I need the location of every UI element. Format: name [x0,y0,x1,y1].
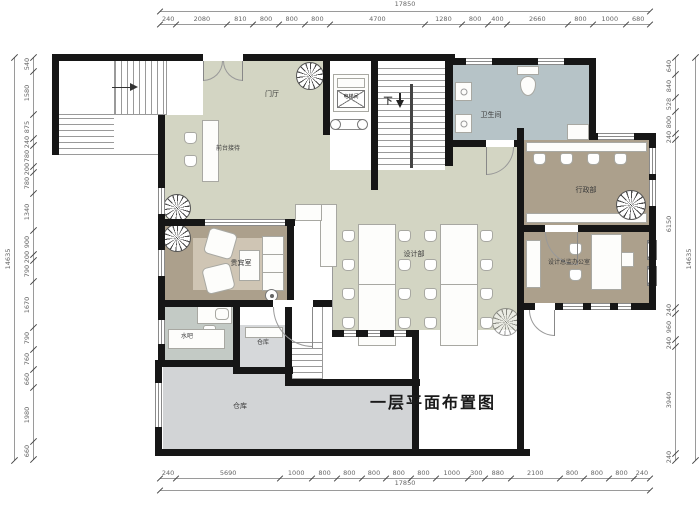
room-label-admin: 行政部 [560,187,612,194]
chair [480,230,493,242]
window [466,58,492,65]
dim-segment: 800 [312,467,337,478]
dim-total-label: 14635 [686,248,693,269]
room-label-director: 设计总监办公室 [523,260,615,266]
dim-segment: 1340 [22,194,33,231]
dim-segment: 240 [160,467,176,478]
door-leaf [312,307,313,348]
chair [480,317,493,329]
dim-segment: 780 [22,172,33,193]
dim-segment: 5690 [176,467,280,478]
dim-segment: 1280 [425,13,463,24]
chair [533,153,546,165]
entry-direction-arrow-icon [130,83,138,91]
entry-stair-treads-lower [59,118,114,153]
entry-door-opening [203,54,243,61]
chair [424,259,437,271]
dim-segment: 790 [22,327,33,349]
chair [424,288,437,300]
dim-segment: 3940 [664,346,675,453]
dim-segment: 300 [468,467,485,478]
down-arrow-icon [396,100,404,108]
window [158,320,165,344]
machine-wheel-icon [330,119,341,130]
wall [285,379,420,386]
room-label-vip: 贵宾室 [225,260,257,267]
door-arc [529,310,555,336]
room-label-entrance-hall: 门厅 [258,91,286,98]
dim-segment: 660 [22,370,33,388]
dim-segment: 800 [337,467,362,478]
wall [233,367,293,374]
dim-segment: 1000 [593,13,626,24]
chair [342,288,355,300]
dim-segment: 6150 [664,140,675,307]
corridor-cabinet [320,204,337,267]
dim-segment: 800 [253,13,279,24]
dim-segment: 800 [362,467,387,478]
dim-segment: 680 [626,13,650,24]
dim-total-label: 17850 [395,1,416,10]
work-table [358,224,396,346]
chair [560,153,573,165]
storage-shelf [245,327,283,338]
wall [155,449,530,456]
toilet-tank [517,66,539,75]
dim-segment: 800 [609,467,634,478]
bathroom-partition [567,124,589,140]
chair [398,288,411,300]
wall [517,311,524,456]
chair [480,259,493,271]
wall [52,54,59,155]
sink-icon [455,114,472,133]
stair-edge-line [59,154,159,155]
window [205,219,285,226]
dim-bottom-chain: 2405690100080080080080080010003008802100… [160,467,650,479]
plant-icon [163,224,191,252]
window [394,330,406,337]
admin-desk [526,142,647,152]
dim-segment: 400 [488,13,507,24]
door-leaf [554,310,555,336]
chair [614,153,627,165]
window [649,148,656,174]
chair [342,317,355,329]
sink-drain [460,88,467,95]
window [368,330,380,337]
dim-segment: 2660 [507,13,568,24]
dim-segment: 810 [227,13,253,24]
entry-arrow-tail [112,87,131,88]
stair-handrail [410,84,413,168]
window [591,303,610,310]
plant-icon [616,190,646,220]
dim-segment: 800 [560,467,585,478]
dim-segment: 800 [279,13,305,24]
dim-segment: 790 [22,260,33,282]
room-label-water-bar: 水吧 [176,334,198,340]
dim-segment: 2080 [176,13,227,24]
dim-segment: 800 [584,467,609,478]
dim-segment: 1980 [22,388,33,442]
wall [155,360,237,367]
door-leaf [203,61,204,81]
window [155,383,162,427]
wall [287,219,294,307]
chair [587,153,600,165]
chair [342,230,355,242]
work-table [440,224,478,346]
dim-segment: 1580 [22,72,33,115]
room-label-stair-down: 下 [381,98,395,107]
dim-top-chain: 2402080810800800800470012808004002660800… [160,13,650,25]
room-label-elevator: 电梯间 [336,95,366,100]
chair [184,132,197,144]
dim-right-chain: 64084052880024061502409602403940240 [664,57,676,460]
dim-segment: 4700 [330,13,424,24]
table-divider [441,284,477,285]
wall [517,128,524,311]
window [598,133,634,140]
door-leaf [242,61,243,81]
chair [398,230,411,242]
dim-total-label: 17850 [395,480,416,489]
dim-segment: 800 [568,13,594,24]
door-opening [535,303,555,310]
dim-segment: 1670 [22,282,33,328]
dim-segment: 1000 [280,467,312,478]
dim-segment: 1000 [436,467,468,478]
dim-segment: 240 [634,467,650,478]
dim-segment: 640 [664,57,675,74]
dim-segment: 800 [305,13,331,24]
wall [323,54,330,135]
chair [480,288,493,300]
wall [52,54,203,61]
wall [371,54,378,190]
dim-segment: 800 [386,467,411,478]
floor-director-office [524,232,649,303]
dim-segment: 840 [664,74,675,97]
room-label-bathroom: 卫生间 [474,112,508,119]
dim-segment: 800 [462,13,488,24]
dim-left-chain: 5401580875240780200780134090020079016707… [22,57,34,460]
dim-top-total: 17850 [160,2,650,12]
down-arrow-stem [399,93,401,100]
wall [445,54,453,166]
dim-segment: 240 [664,453,675,460]
dim-segment: 540 [22,57,33,72]
drain-dot [270,294,274,298]
basement-stair-treads [292,342,322,382]
stair-edge-line [59,114,167,115]
stair-edge-line [166,61,167,115]
dim-bottom-total: 17850 [160,481,650,491]
dim-segment: 528 [664,97,675,111]
dim-segment: 660 [22,442,33,460]
sink-drain [460,120,467,127]
stair-edge-line [322,307,323,386]
wall [589,58,596,140]
side-table [621,252,634,267]
table-divider [359,284,395,285]
floor-plan-canvas: 17850 2402080810800800800470012808004002… [0,0,700,506]
dim-total-label: 14635 [5,248,12,269]
window [344,330,356,337]
chair [184,155,197,167]
sink-icon [455,82,472,101]
wall [243,54,455,61]
door-leaf [486,147,487,175]
wall [517,225,656,232]
drawing-title: 一层平面布置图 [370,389,496,413]
plant-icon [296,62,324,90]
dim-right-total: 14635 [685,57,696,460]
machine-wheel-icon [357,119,368,130]
room-label-storage: 仓库 [250,340,276,346]
chair [424,317,437,329]
room-label-warehouse: 仓库 [226,403,254,410]
window [538,58,564,65]
dim-segment: 800 [411,467,436,478]
dim-segment: 2100 [511,467,560,478]
plant-icon [492,308,520,336]
chair [398,317,411,329]
door-opening [486,140,514,147]
room-label-reception: 前台接待 [210,146,246,152]
corridor-cabinet [295,204,322,221]
door-opening [273,300,313,307]
window [563,303,583,310]
chair [424,230,437,242]
window [649,180,656,206]
chair [342,259,355,271]
dim-segment: 760 [22,349,33,370]
dim-segment: 880 [485,467,511,478]
door-opening [545,225,578,232]
elevator-counterweight [337,78,365,88]
window [618,303,631,310]
room-label-design: 设计部 [400,251,428,258]
sink-icon [215,308,229,320]
plant-icon [163,194,191,222]
dim-left-total: 14635 [4,57,15,460]
window [158,250,165,276]
vip-sofa [262,236,284,291]
chair [569,269,582,281]
dim-segment: 240 [160,13,176,24]
window [158,188,165,214]
chair [398,259,411,271]
